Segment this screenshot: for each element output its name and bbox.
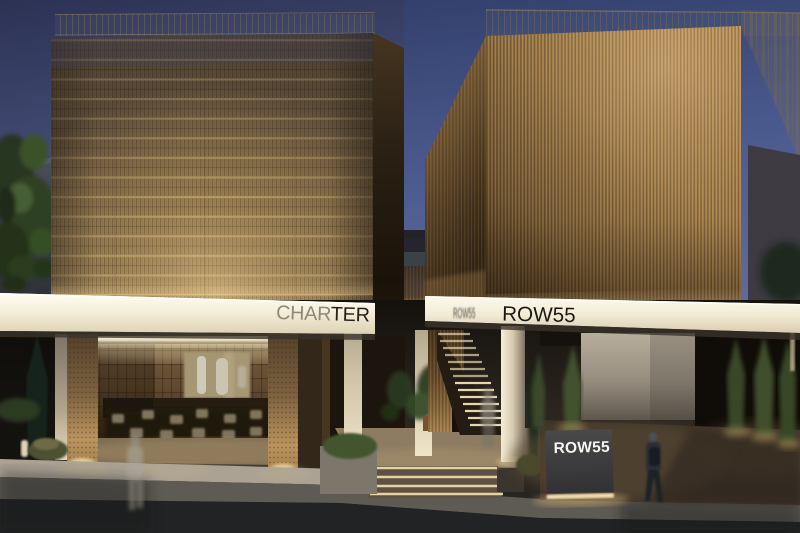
svg-text:ROW55: ROW55	[453, 306, 475, 322]
svg-text:CHARTER: CHARTER	[276, 302, 370, 326]
svg-text:ROW55: ROW55	[502, 303, 576, 328]
svg-text:ROW55: ROW55	[553, 439, 610, 457]
